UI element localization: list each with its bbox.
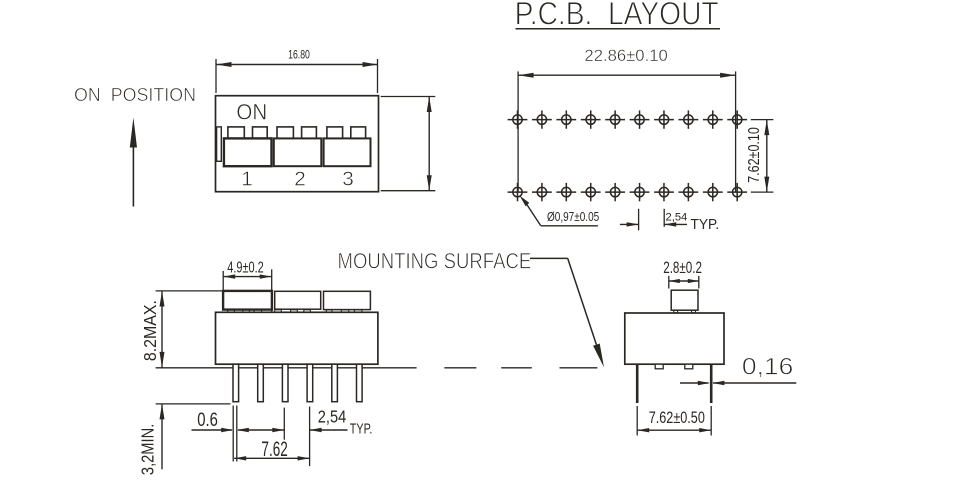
svg-text:1: 1	[241, 167, 253, 190]
svg-text:16.80: 16.80	[288, 49, 310, 62]
svg-text:8.2MAX.: 8.2MAX.	[140, 300, 160, 361]
svg-text:Ø0,97±0.05: Ø0,97±0.05	[547, 210, 599, 225]
svg-text:22.86±0.10: 22.86±0.10	[584, 47, 667, 65]
svg-text:7.62±0.10: 7.62±0.10	[746, 127, 764, 183]
svg-text:TYP.: TYP.	[691, 217, 720, 234]
svg-text:ON: ON	[236, 100, 267, 125]
svg-text:3,2MIN.: 3,2MIN.	[138, 424, 158, 475]
svg-text:2: 2	[294, 167, 306, 190]
svg-text:7.62: 7.62	[261, 437, 287, 461]
svg-text:4.9±0.2: 4.9±0.2	[227, 259, 263, 276]
svg-text:2.8±0.2: 2.8±0.2	[663, 259, 702, 278]
svg-text:0,16: 0,16	[742, 353, 793, 380]
svg-text:2,54: 2,54	[666, 212, 688, 224]
svg-text:ON POSITION: ON POSITION	[74, 85, 196, 105]
svg-text:7.62±0.50: 7.62±0.50	[649, 409, 705, 427]
svg-text:2,54: 2,54	[318, 408, 346, 426]
svg-text:3: 3	[342, 167, 354, 190]
svg-text:MOUNTING SURFACE: MOUNTING SURFACE	[338, 249, 532, 274]
svg-text:TYP.: TYP.	[350, 420, 373, 437]
svg-text:0.6: 0.6	[197, 408, 218, 430]
svg-text:P.C.B. LAYOUT: P.C.B. LAYOUT	[515, 0, 719, 32]
